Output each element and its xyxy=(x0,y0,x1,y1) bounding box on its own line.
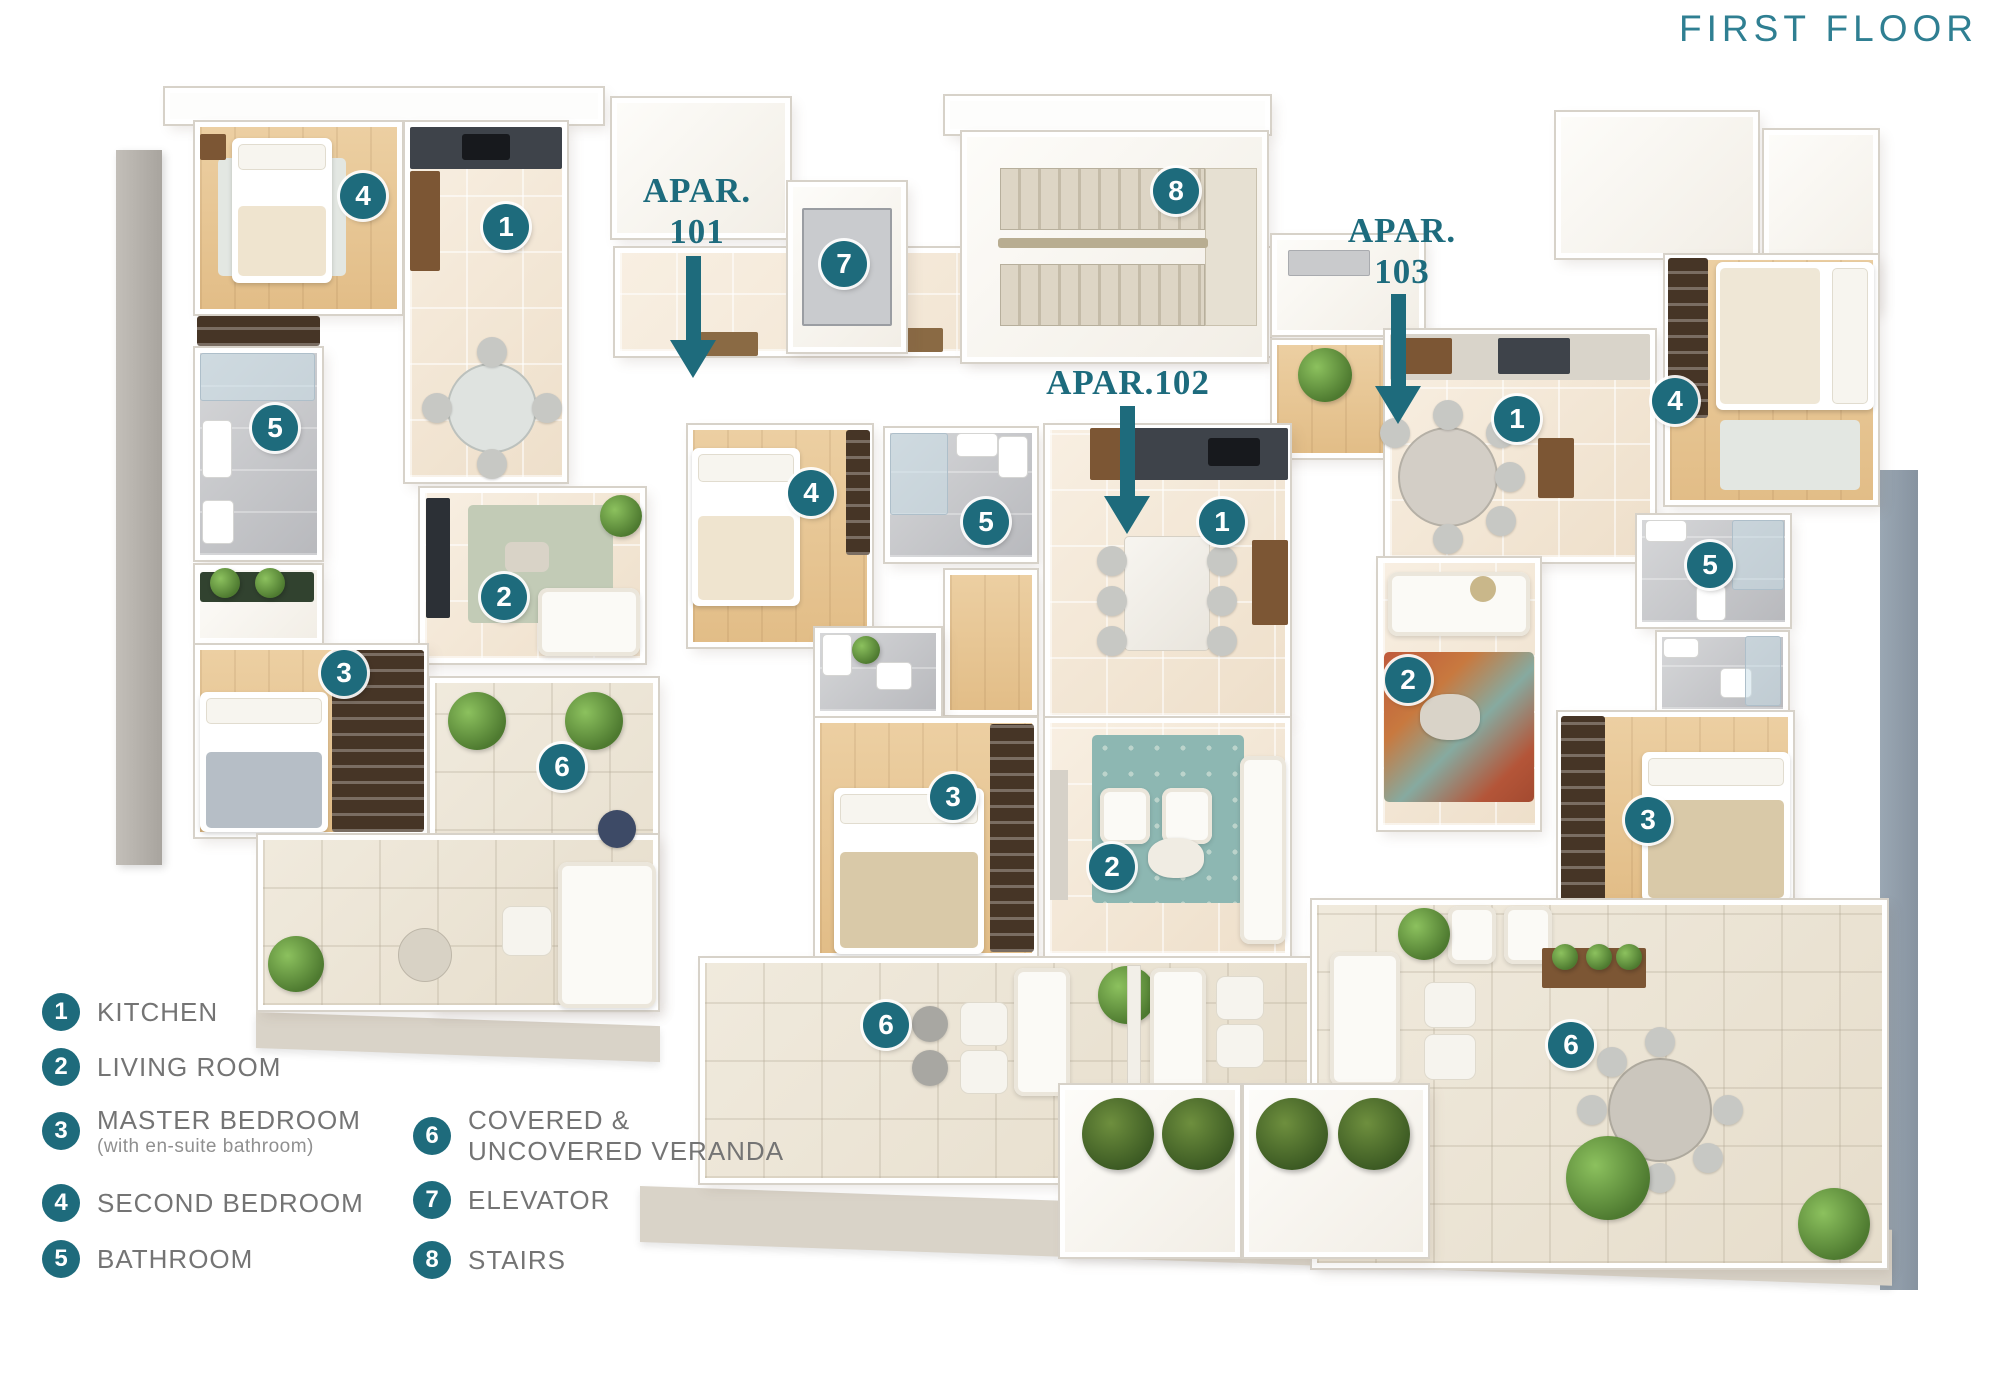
legend-number-6: 6 xyxy=(413,1117,451,1155)
dining-chair xyxy=(477,337,507,367)
armchair xyxy=(1100,788,1150,844)
bed-blanket xyxy=(698,516,794,600)
coffee-table xyxy=(505,542,549,572)
ottoman xyxy=(1424,982,1476,1028)
top-wall-apartment-101 xyxy=(165,88,603,124)
dining-chair xyxy=(1495,462,1525,492)
plant xyxy=(1586,944,1612,970)
apartment-101-label: APAR. 101 xyxy=(597,170,797,253)
coffee-table xyxy=(1420,694,1480,740)
plant xyxy=(1298,348,1352,402)
legend-label-veranda-line2: UNCOVERED VERANDA xyxy=(468,1136,784,1167)
arrow-shaft xyxy=(1391,294,1406,386)
cooktop xyxy=(462,134,510,160)
plant xyxy=(565,692,623,750)
marker-103-master-bedroom: 3 xyxy=(1625,797,1671,843)
apartment-103-label-line2: 103 xyxy=(1302,251,1502,292)
side-table xyxy=(398,928,452,982)
bed-pillow xyxy=(698,454,794,482)
legend-number-4: 4 xyxy=(42,1184,80,1222)
marker-101-veranda: 6 xyxy=(539,744,585,790)
legend-label-elevator: ELEVATOR xyxy=(468,1185,610,1216)
arrow-shaft xyxy=(686,256,701,340)
marker-102-bathroom: 5 xyxy=(963,499,1009,545)
marker-101-living-room: 2 xyxy=(481,574,527,620)
sofa xyxy=(1388,572,1530,636)
bar-chair xyxy=(1097,546,1127,576)
cypress-tree xyxy=(1338,1098,1410,1170)
plant xyxy=(1616,944,1642,970)
toilet xyxy=(998,436,1028,478)
legend-label-second-bedroom: SECOND BEDROOM xyxy=(97,1188,364,1219)
exterior-wall-left xyxy=(116,150,162,865)
side-table xyxy=(1470,576,1496,602)
plant xyxy=(1098,966,1156,1024)
marker-101-kitchen: 1 xyxy=(483,204,529,250)
marker-102-master-bedroom: 3 xyxy=(930,774,976,820)
tv-unit xyxy=(426,498,450,618)
arrow-head xyxy=(1104,496,1150,534)
apartment-103-label-line1: APAR. xyxy=(1302,210,1502,251)
dining-chair xyxy=(477,449,507,479)
pouf xyxy=(912,1050,948,1086)
apartment-102-label: APAR.102 xyxy=(1008,362,1248,403)
plant xyxy=(1552,944,1578,970)
outdoor-sofa xyxy=(1150,968,1206,1092)
arrow-shaft xyxy=(1120,406,1135,496)
pouf xyxy=(598,810,636,848)
legend-label-veranda-line1: COVERED & xyxy=(468,1105,784,1136)
coffee-table xyxy=(1148,838,1204,878)
stairs-steps xyxy=(1000,264,1205,326)
down-arrow-icon xyxy=(1104,406,1150,534)
outdoor-chair xyxy=(1645,1027,1675,1057)
page-title: FIRST FLOOR xyxy=(1679,8,1978,50)
legend-item-master-bedroom: 3 MASTER BEDROOM (with en-suite bathroom… xyxy=(42,1105,361,1158)
bar-chair xyxy=(1207,586,1237,616)
outdoor-chair xyxy=(1577,1095,1607,1125)
sink xyxy=(956,433,998,457)
bed-pillow xyxy=(238,144,326,170)
sink xyxy=(1645,520,1687,542)
legend-number-2: 2 xyxy=(42,1048,80,1086)
legend-number-7: 7 xyxy=(413,1181,451,1219)
marker-102-second-bedroom: 4 xyxy=(788,470,834,516)
legend-item-second-bedroom: 4 SECOND BEDROOM xyxy=(42,1184,364,1222)
bed-blanket xyxy=(840,852,978,948)
kitchen-cabinet xyxy=(410,171,440,271)
dining-chair xyxy=(422,393,452,423)
marker-stairs: 8 xyxy=(1153,168,1199,214)
outdoor-chair xyxy=(1713,1095,1743,1125)
ottoman xyxy=(960,1002,1008,1046)
stairs-railing xyxy=(998,238,1208,248)
bed-blanket xyxy=(1720,268,1820,404)
bar-chair xyxy=(1097,626,1127,656)
legend-number-5: 5 xyxy=(42,1240,80,1278)
top-wall-core xyxy=(945,96,1270,134)
sink xyxy=(1663,638,1699,658)
legend-label-bathroom: BATHROOM xyxy=(97,1244,253,1275)
dining-chair xyxy=(1433,524,1463,554)
wardrobe xyxy=(197,316,320,346)
down-arrow-icon xyxy=(670,256,716,378)
legend-item-stairs: 8 STAIRS xyxy=(413,1241,566,1279)
bar-chair xyxy=(1207,626,1237,656)
legend-item-kitchen: 1 KITCHEN xyxy=(42,993,218,1031)
dining-chair xyxy=(1486,506,1516,536)
floor-plan-canvas: FIRST FLOOR xyxy=(0,0,2000,1388)
marker-103-bathroom: 5 xyxy=(1687,542,1733,588)
sofa xyxy=(538,588,640,656)
legend-item-bathroom: 5 BATHROOM xyxy=(42,1240,253,1278)
palm-plant xyxy=(1798,1188,1870,1260)
bed-blanket xyxy=(206,752,322,828)
outdoor-chair xyxy=(1693,1143,1723,1173)
legend-label-living-room: LIVING ROOM xyxy=(97,1052,281,1083)
sink xyxy=(822,634,852,676)
ottoman xyxy=(1216,1024,1264,1068)
marker-elevator: 7 xyxy=(821,241,867,287)
dining-table xyxy=(1398,427,1498,527)
cypress-tree xyxy=(1162,1098,1234,1170)
bed-pillow xyxy=(1832,268,1868,404)
legend-sublabel-master-bedroom: (with en-suite bathroom) xyxy=(97,1136,361,1158)
ottoman xyxy=(960,1050,1008,1094)
marker-101-master-bedroom: 3 xyxy=(321,650,367,696)
marker-102-living-room: 2 xyxy=(1089,844,1135,890)
apartment-101-label-line2: 101 xyxy=(597,211,797,252)
plant xyxy=(268,936,324,992)
legend-number-1: 1 xyxy=(42,993,80,1031)
shower xyxy=(890,433,948,515)
veranda-divider-wall xyxy=(1128,966,1140,1094)
cypress-tree xyxy=(1256,1098,1328,1170)
marker-103-second-bedroom: 4 xyxy=(1652,378,1698,424)
wardrobe xyxy=(1561,716,1605,901)
plant xyxy=(210,568,240,598)
legend-label-kitchen: KITCHEN xyxy=(97,997,218,1028)
marker-103-kitchen: 1 xyxy=(1494,396,1540,442)
kitchen-cabinet xyxy=(1538,438,1574,498)
marker-101-bathroom: 5 xyxy=(252,405,298,451)
apartment-101-label-line1: APAR. xyxy=(597,170,797,211)
palm-plant xyxy=(1566,1136,1650,1220)
ottoman xyxy=(1216,976,1264,1020)
marker-102-veranda: 6 xyxy=(863,1002,909,1048)
plant xyxy=(600,495,642,537)
dining-chair xyxy=(1433,400,1463,430)
stairs-landing xyxy=(1205,168,1257,326)
lounge-chair xyxy=(1448,906,1496,964)
sofa xyxy=(1240,756,1286,944)
tv-wall xyxy=(1050,770,1068,900)
legend-label-master-bedroom: MASTER BEDROOM xyxy=(97,1105,361,1136)
marker-101-second-bedroom: 4 xyxy=(340,173,386,219)
kitchen-island xyxy=(1124,536,1210,651)
legend-item-veranda: 6 COVERED & UNCOVERED VERANDA xyxy=(413,1105,784,1166)
marker-103-veranda: 6 xyxy=(1548,1022,1594,1068)
bar-chair xyxy=(1207,546,1237,576)
armchair xyxy=(1162,788,1212,844)
marker-103-living-room: 2 xyxy=(1385,657,1431,703)
wardrobe xyxy=(846,430,870,555)
apartment-102-label-line1: APAR.102 xyxy=(1008,362,1248,403)
nightstand xyxy=(200,134,226,160)
outdoor-sofa xyxy=(558,862,656,1008)
plant xyxy=(1398,908,1450,960)
legend-item-living-room: 2 LIVING ROOM xyxy=(42,1048,281,1086)
plant xyxy=(255,568,285,598)
bed-pillow xyxy=(1648,758,1784,786)
outdoor-sofa xyxy=(1014,968,1070,1096)
legend-number-3: 3 xyxy=(42,1112,80,1150)
shower xyxy=(1732,520,1784,590)
cypress-tree xyxy=(1082,1098,1154,1170)
arrow-head xyxy=(1375,386,1421,424)
shower xyxy=(200,353,315,401)
legend-number-8: 8 xyxy=(413,1241,451,1279)
legend-item-elevator: 7 ELEVATOR xyxy=(413,1181,610,1219)
bed-blanket xyxy=(238,206,326,276)
cooktop xyxy=(1208,438,1260,466)
plant xyxy=(448,692,506,750)
marker-102-kitchen: 1 xyxy=(1199,499,1245,545)
sink xyxy=(202,420,232,478)
room-102-hallway xyxy=(945,570,1037,715)
dining-table xyxy=(447,363,537,453)
ottoman xyxy=(1424,1034,1476,1080)
down-arrow-icon xyxy=(1375,294,1421,424)
kitchen-counter-dark xyxy=(1498,338,1570,374)
shower xyxy=(1745,636,1781,706)
bar-chair xyxy=(1097,586,1127,616)
ottoman xyxy=(502,906,552,956)
toilet xyxy=(876,662,912,690)
outdoor-sofa xyxy=(1330,952,1400,1086)
dining-chair xyxy=(532,393,562,423)
pouf xyxy=(912,1006,948,1042)
outdoor-chair xyxy=(1597,1047,1627,1077)
plant xyxy=(852,636,880,664)
room-empty-top-right xyxy=(1556,112,1758,258)
bedroom-rug xyxy=(1720,420,1860,490)
arrow-head xyxy=(670,340,716,378)
veranda-parapet-band-left xyxy=(256,1012,660,1062)
legend-label-stairs: STAIRS xyxy=(468,1245,566,1276)
toilet xyxy=(202,500,234,544)
toilet xyxy=(1696,585,1726,621)
wardrobe xyxy=(990,724,1034,952)
bed-pillow xyxy=(206,698,322,724)
apartment-103-label: APAR. 103 xyxy=(1302,210,1502,293)
tall-cabinet xyxy=(1252,540,1288,625)
